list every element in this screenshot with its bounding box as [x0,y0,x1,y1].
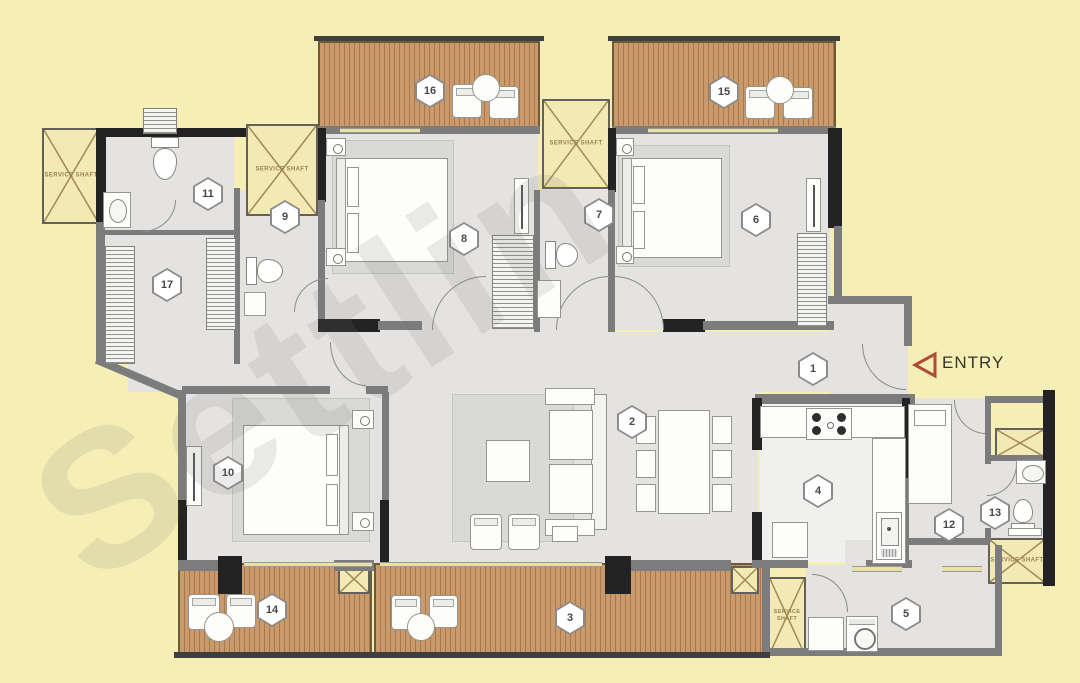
lamp-icon [333,144,343,154]
dining-chair [712,416,732,444]
wall-segment [96,222,105,362]
marker-room-15: 15 [709,75,739,109]
entry-arrow-icon [910,350,938,380]
service-shaft-label: SERVICE SHAFT [248,167,316,174]
armchair [508,514,540,550]
window-sill [942,566,982,572]
wc-bowl [1013,499,1033,523]
bed-single [908,404,952,504]
dining-chair [636,450,656,478]
chair-back [230,598,252,606]
armchair [470,514,502,550]
pillow [914,410,946,426]
wc-toilet [246,254,284,288]
wc-tank [545,241,556,269]
wc-toilet [545,238,579,272]
lamp-icon [333,254,343,264]
wc-bowl [257,259,283,283]
marker-room-9: 9 [270,200,300,234]
tv-icon [813,185,815,227]
washer-door-icon [854,628,876,650]
dining-table [658,410,710,514]
nightstand [326,248,346,266]
service-shaft-top-center: SERVICE SHAFT [542,99,610,189]
service-duct [995,428,1045,458]
entry-label: ENTRY [942,353,1004,373]
headboard [337,159,346,261]
wall-segment [828,296,912,304]
vanity-counter [1008,528,1042,536]
wall-segment [985,396,1047,403]
dining-chair [712,450,732,478]
sofa-seat-cushion [549,410,593,460]
wall-segment [834,226,842,300]
service-duct [731,566,759,594]
chair-back [395,599,417,607]
burner-icon [837,426,846,435]
burner-icon [837,413,846,422]
wall-segment [608,128,616,192]
knob-icon [827,422,834,429]
kitchen-sink [876,512,902,560]
window-sill [648,128,778,133]
marker-room-7: 7 [584,198,614,232]
marker-room-8: 8 [449,222,479,256]
washbasin [103,192,131,228]
wall-segment [380,500,389,564]
washbasin [1016,460,1046,484]
wall-segment [995,545,1002,655]
sliding-door-sill [380,562,602,567]
wall-segment [755,394,915,404]
nightstand [616,138,634,156]
wall-segment [382,392,389,502]
coffee-table [486,440,530,482]
basin-icon [1022,465,1044,482]
marker-room-6: 6 [741,203,771,237]
deck-table-round [204,612,234,642]
nightstand [616,246,634,264]
wall-segment [318,200,325,332]
headboard [339,426,348,534]
chair-back [512,518,536,526]
planter-ledge [143,108,177,134]
shower [537,280,561,318]
chair-back [474,518,498,526]
bed-double [622,158,722,258]
wall-segment [182,386,330,394]
pillow [326,434,338,476]
side-table [552,526,578,542]
sofa [545,388,607,536]
utility-cabinet [808,617,844,651]
wall-segment [318,128,326,202]
window-sill [340,128,420,133]
dining-chair [712,484,732,512]
wall-segment [1043,390,1055,586]
shaft-cross-icon [997,430,1043,456]
nightstand [326,138,346,156]
marker-room-2: 2 [617,405,647,439]
wall-segment [174,652,770,658]
wc-tank [246,257,257,285]
lamp-icon [622,252,632,262]
tv-icon [521,185,523,229]
shaft-cross-icon [733,568,757,592]
washer-panel [849,619,875,625]
nightstand [352,410,374,429]
deck-table-round [766,76,794,104]
wardrobe [797,233,827,327]
marker-room-11: 11 [193,177,223,211]
sliding-door-sill [244,562,372,567]
chair-back [433,599,454,607]
wall-segment [608,36,840,41]
wall-segment [178,560,222,571]
shower [244,292,266,316]
wall-segment [102,230,234,235]
pillow [326,484,338,526]
wc-bowl [556,243,578,267]
floor-plan: SERVICE SHAFT SERVICE SHAFT SERVICE SHAF… [0,0,1080,683]
wall-column [605,556,631,594]
tv-icon [193,453,195,501]
drain-icon [887,527,891,531]
wardrobe [492,235,534,329]
sofa-armrest [545,388,595,405]
deck-table-round [472,74,500,102]
wall-column [218,556,242,594]
wall-segment [178,500,187,566]
refrigerator [772,522,808,558]
marker-room-17: 17 [152,268,182,302]
marker-room-12: 12 [934,508,964,542]
wall-segment [904,296,912,346]
lamp-icon [360,518,370,528]
pillow [347,167,359,207]
lamp-icon [622,144,632,154]
wardrobe [105,246,135,364]
dining-chair [636,484,656,512]
wc-tank [151,137,179,148]
marker-room-10: 10 [213,456,243,490]
deck-table-round [407,613,435,641]
wall-segment [663,319,705,332]
basin-icon [109,199,127,223]
wall-segment [178,390,186,504]
bed-double [243,425,349,535]
tv-console [806,178,821,232]
tv-console [514,178,529,234]
sofa-seat-cushion [549,464,593,514]
nightstand [352,512,374,531]
chair-back [192,598,216,606]
bed-double [336,158,448,262]
window-sill [852,566,902,572]
sink-basin [881,518,899,546]
sofa-back [591,394,607,530]
pillow [633,166,645,204]
service-shaft-bottom-center: SERVICE SHAFT [768,577,806,655]
service-shaft-label: SERVICE SHAFT [770,609,804,623]
marker-room-13: 13 [980,496,1010,530]
hob-4-burner [806,408,852,440]
wall-segment [768,648,1002,656]
wardrobe [206,238,236,330]
marker-room-16: 16 [415,74,445,108]
marker-room-4: 4 [803,474,833,508]
wc-bowl [153,148,177,180]
wall-segment [318,319,380,332]
burner-icon [812,413,821,422]
burner-icon [812,426,821,435]
pillow [347,213,359,253]
marker-room-3: 3 [555,601,585,635]
wall-segment [752,560,808,568]
service-shaft-label: SERVICE SHAFT [44,173,98,180]
wall-segment [314,36,544,41]
marker-room-14: 14 [257,593,287,627]
wall-segment [631,560,731,571]
headboard [623,159,632,257]
drainboard [881,549,897,557]
wc-toilet [148,137,182,181]
marker-room-1: 1 [798,352,828,386]
service-shaft-top-left: SERVICE SHAFT [42,128,100,224]
service-shaft-label: SERVICE SHAFT [544,141,608,148]
wall-segment [762,565,770,655]
marker-room-5: 5 [891,597,921,631]
lamp-icon [360,416,370,426]
wall-segment [828,128,842,228]
tv-console [186,446,202,506]
wall-segment [378,321,422,330]
washing-machine [846,616,878,652]
pillow [633,211,645,249]
